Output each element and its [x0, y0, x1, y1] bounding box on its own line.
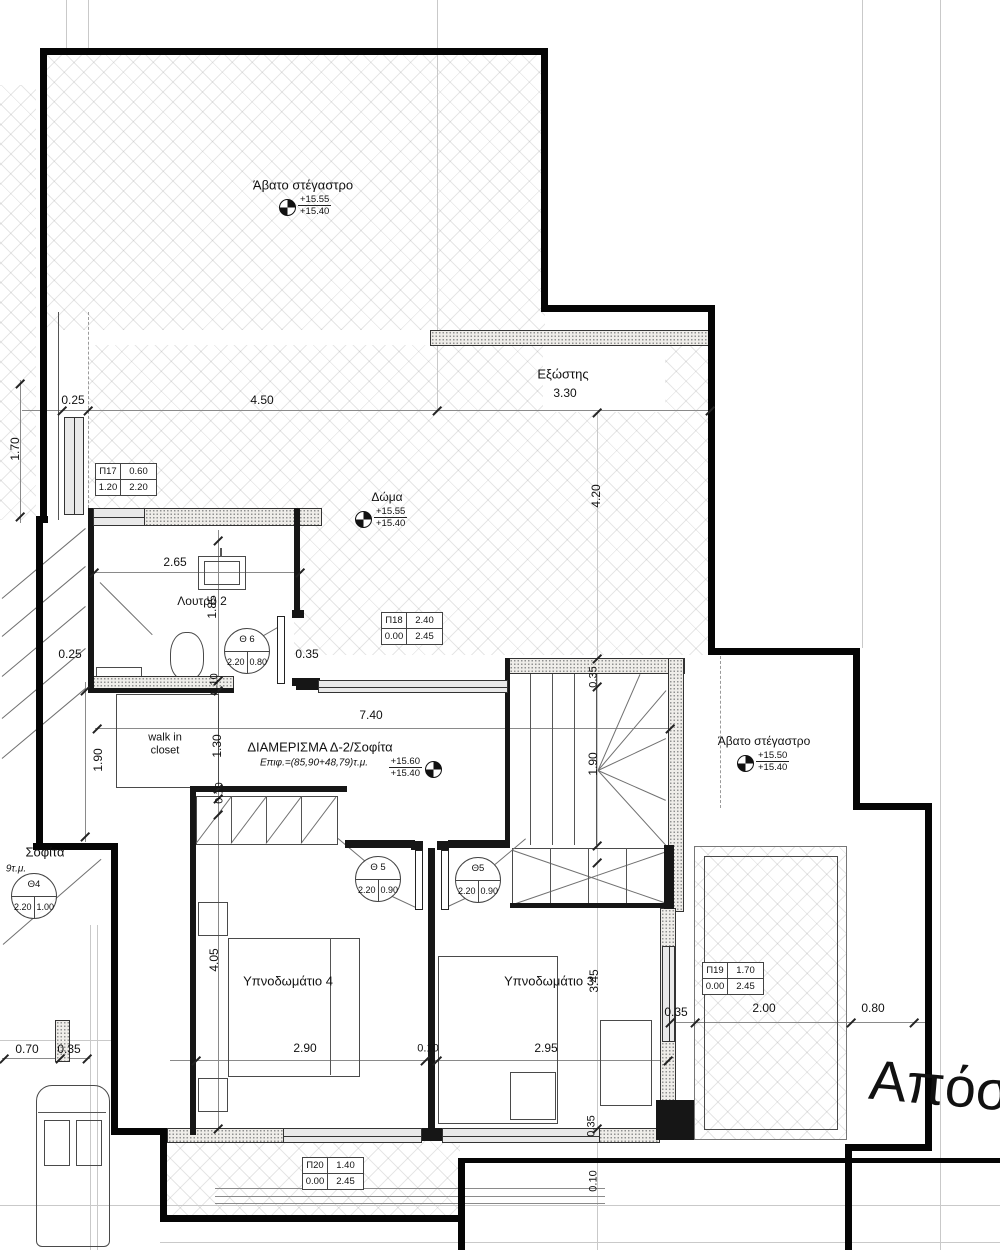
- wardrobe-divider: [301, 796, 302, 843]
- door-tag-th4-label: Θ4: [12, 874, 56, 897]
- door-tag-th5b-values: 2.200.90: [456, 881, 500, 903]
- dim-21: 0.25: [58, 648, 81, 662]
- dim-line: [2, 1058, 90, 1059]
- stair-tread: [574, 674, 575, 845]
- elevation-apartment-v2: +15.40: [389, 768, 422, 779]
- wall-boundary: [708, 648, 860, 655]
- wall-boundary-left: [40, 48, 47, 523]
- window-p20: [283, 1128, 422, 1143]
- wall-boundary: [160, 1128, 167, 1222]
- door-tag-th5a-values: 2.200.90: [356, 880, 400, 902]
- dim-16: 1.70: [9, 437, 23, 460]
- wall-boundary: [541, 305, 715, 312]
- window-tag-p17-v1: 0.60: [121, 464, 156, 479]
- wall-parapet-balcony: [430, 330, 714, 346]
- door-tag-th4-v2: 1.00: [35, 897, 57, 919]
- sink-faucet: [220, 548, 222, 557]
- elevation-doma-v2: +15.40: [374, 518, 407, 529]
- dim-line: [85, 682, 86, 842]
- stair-winder: [598, 770, 666, 801]
- wardrobe-divider: [231, 796, 232, 843]
- elevation-marker-icon: [425, 761, 442, 778]
- dim-37: 0.70: [15, 1043, 38, 1057]
- pillow-bedroom3: [510, 1072, 556, 1120]
- wall-corner: [296, 678, 320, 690]
- door-tag-th5a: Θ 52.200.90: [355, 856, 401, 902]
- neighbour-stair-line: [2, 606, 86, 677]
- wall-line-left-strip: [58, 312, 59, 520]
- dim-line: [22, 410, 712, 411]
- elevation-doma-v1: +15.55: [374, 506, 407, 518]
- window-tag-p19: Π191.700.002.45: [702, 962, 764, 995]
- closet-divider: [588, 848, 589, 906]
- window-tag-p18-id: Π18: [382, 613, 406, 628]
- window-tag-p18: Π182.400.002.45: [381, 612, 443, 645]
- door-tag-th5a-v2: 0.90: [379, 880, 401, 902]
- window-tag-p17-v2: 1.20: [96, 480, 120, 495]
- grid-line: [437, 0, 438, 412]
- grid-line: [88, 0, 89, 48]
- nightstand: [198, 1078, 228, 1112]
- elevation-marker-icon: [355, 511, 372, 528]
- dim-27: 0.35: [588, 666, 601, 687]
- wall-boundary-left: [36, 516, 43, 850]
- balcony-slab-line: [215, 1203, 605, 1204]
- window-p18: [318, 680, 508, 693]
- door-tag-th4-values: 2.201.00: [12, 897, 56, 919]
- door-tag-th4-v1: 2.20: [12, 897, 35, 919]
- door-leaf-th5b: [441, 850, 449, 910]
- label-bedroom3-8: Υπνοδωμάτιο 3: [504, 975, 594, 990]
- neighbour-stair-line: [2, 528, 86, 599]
- window-tag-p20-v2: 0.00: [303, 1174, 327, 1189]
- dim-33: 2.95: [534, 1042, 557, 1056]
- bed4-pillow-line: [330, 938, 331, 1075]
- dim-31: 2.90: [293, 1042, 316, 1056]
- wall-boundary: [708, 305, 715, 655]
- dim-36: 0.80: [861, 1002, 884, 1016]
- window-tag-p17-v3: 2.20: [121, 480, 156, 495]
- window-tag-p19-id: Π19: [703, 963, 727, 978]
- wall-bottom-right: [598, 1128, 660, 1143]
- door-tag-th6-values: 2.200.80: [225, 652, 269, 674]
- car-symbol: [36, 1085, 110, 1247]
- label-apostasi-12: Απόσ: [867, 1048, 1000, 1124]
- dim-line: [92, 572, 302, 573]
- door-tag-th5b-v1: 2.20: [456, 881, 479, 903]
- dim-28: 1.90: [587, 752, 601, 775]
- stair-winder: [598, 674, 641, 771]
- wall-boundary: [36, 516, 48, 523]
- elevation-apartment-values: +15.60+15.40: [389, 756, 422, 780]
- dim-30: 3.45: [588, 969, 602, 992]
- dim-26: 7.40: [359, 709, 382, 723]
- door-tag-th6: Θ 62.200.80: [224, 628, 270, 674]
- window-tag-p17: Π170.601.202.20: [95, 463, 157, 496]
- dim-20: 0.35: [295, 648, 318, 662]
- window-tag-p19-v2: 0.00: [703, 979, 727, 994]
- desk-bedroom3: [600, 1020, 652, 1106]
- closet-divider: [550, 848, 551, 906]
- car-seat: [76, 1120, 102, 1166]
- elevation-doma-values: +15.55+15.40: [374, 506, 407, 530]
- door-jamb: [437, 841, 449, 850]
- window-tag-p18-v2: 0.00: [382, 629, 406, 644]
- dim-13: 0.25: [61, 394, 84, 408]
- neighbour-stair-line: [2, 566, 86, 637]
- elevation-roof-top-v2: +15.40: [298, 206, 331, 217]
- stair-winder: [598, 738, 666, 771]
- dashed-projection-line: [720, 656, 721, 808]
- label-avato-right-9: Άβατο στέγαστρο: [718, 735, 811, 749]
- wall-boundary: [853, 648, 860, 810]
- window-tag-p17-id: Π17: [96, 464, 120, 479]
- stair-tread: [552, 674, 553, 845]
- door-leaf-th5a: [415, 850, 423, 910]
- balcony-slab-line: [215, 1188, 605, 1189]
- window-tag-p18-v1: 2.40: [407, 613, 442, 628]
- dim-17: 4.20: [590, 484, 604, 507]
- dim-24: 1.30: [211, 734, 225, 757]
- window-tag-p19-v1: 1.70: [728, 963, 763, 978]
- wall-bedroom4-left: [190, 786, 196, 1135]
- car-seat: [44, 1120, 70, 1166]
- door-tag-th5b-label: Θ5: [456, 858, 500, 881]
- window-tag-p20: Π201.400.002.45: [302, 1157, 364, 1190]
- door-tag-th4: Θ42.201.00: [11, 873, 57, 919]
- balcony-slab-line: [215, 1196, 605, 1197]
- stair-winder: [598, 690, 667, 771]
- elevation-marker-icon: [279, 199, 296, 216]
- dim-39: 0.35: [586, 1115, 599, 1136]
- car-windshield: [38, 1112, 106, 1113]
- dim-40: 0.10: [588, 1170, 601, 1191]
- dim-23: 1.90: [92, 748, 106, 771]
- door-tag-th5a-v1: 2.20: [356, 880, 379, 902]
- elevation-roof-right-v1: +15.50: [756, 750, 789, 762]
- window-left-strip: [64, 417, 84, 515]
- wall-boundary: [845, 1144, 932, 1151]
- dim-14: 4.50: [250, 394, 273, 408]
- label-doma-2: Δώμα: [371, 491, 402, 505]
- dim-25: 0.10: [214, 782, 227, 803]
- wall-stair-terrace: [664, 845, 674, 909]
- stair-winder: [598, 770, 667, 845]
- dim-32: 0.10: [417, 1043, 438, 1056]
- nightstand: [198, 902, 228, 936]
- wall-between-bedrooms: [428, 848, 435, 1135]
- label-sofita-fragment-10: Σοφίτα: [25, 846, 64, 861]
- window-tag-p18-v3: 2.45: [407, 629, 442, 644]
- label-apartment-title-5: ΔΙΑΜΕΡΙΣΜΑ Δ-2/Σοφίτα: [247, 741, 392, 756]
- wall-boundary-top: [40, 48, 548, 55]
- wall-bottom-left: [167, 1128, 285, 1143]
- label-walkin-closet-4: walk in closet: [148, 731, 182, 756]
- wall-window-pier: [420, 1128, 442, 1141]
- wall-corridor-a: [345, 840, 415, 848]
- elevation-roof-top-v1: +15.55: [298, 194, 331, 206]
- grid-line: [66, 0, 67, 48]
- window-tag-p20-v1: 1.40: [328, 1158, 363, 1173]
- dim-15: 3.30: [553, 387, 576, 401]
- elevation-roof-top-values: +15.55+15.40: [298, 194, 331, 218]
- wall-bath-right: [294, 508, 300, 614]
- label-exostis-1: Εξώστης: [537, 368, 588, 383]
- door-tag-th6-v1: 2.20: [225, 652, 248, 674]
- elevation-roof-right-v2: +15.40: [756, 762, 789, 773]
- toilet: [170, 632, 204, 680]
- elevation-marker-icon: [737, 755, 754, 772]
- elevation-apartment-v1: +15.60: [389, 756, 422, 768]
- dim-29: 4.05: [208, 948, 222, 971]
- dim-19: 1.85: [206, 595, 220, 618]
- door-jamb: [411, 841, 423, 850]
- door-leaf-th6: [277, 616, 285, 684]
- label-area-fragment-11: 9τ.μ.: [6, 863, 26, 875]
- wall-boundary: [853, 803, 932, 810]
- label-avato-top-0: Άβατο στέγαστρο: [253, 179, 353, 194]
- window-tag-p20-id: Π20: [303, 1158, 327, 1173]
- wall-bath-left: [88, 508, 94, 688]
- label-bedroom4-7: Υπνοδωμάτιο 4: [243, 975, 333, 990]
- grid-line: [862, 0, 863, 648]
- door-tag-th5b: Θ52.200.90: [455, 857, 501, 903]
- wall-boundary: [111, 1128, 167, 1135]
- window-tag-p19-v3: 2.45: [728, 979, 763, 994]
- plot-boundary-line: [458, 1158, 1000, 1163]
- dim-22: 0.10: [209, 673, 222, 694]
- dim-34: 0.35: [664, 1006, 687, 1020]
- wardrobe-divider: [266, 796, 267, 843]
- dim-38: 0.35: [57, 1043, 80, 1057]
- wall-boundary: [111, 843, 118, 1135]
- door-tag-th6-v2: 0.80: [248, 652, 270, 674]
- door-tag-th5b-v2: 0.90: [479, 881, 501, 903]
- wall-boundary-bottom: [160, 1215, 465, 1222]
- wall-bedroom3-top: [510, 903, 668, 908]
- wall-boundary: [458, 1158, 465, 1250]
- wall-corner-bedroom3: [656, 1100, 694, 1140]
- window-tag-p20-v3: 2.45: [328, 1174, 363, 1189]
- stair-tread: [530, 674, 531, 845]
- label-apartment-area-6: Επιφ.=(85,90+48,79)τ.μ.: [260, 757, 368, 769]
- bed-bedroom4: [228, 938, 360, 1077]
- elevation-roof-right-values: +15.50+15.40: [756, 750, 789, 774]
- door-tag-th5a-label: Θ 5: [356, 857, 400, 880]
- window-bedroom3: [442, 1128, 600, 1143]
- door-jamb: [292, 610, 304, 618]
- window-p19: [662, 946, 675, 1042]
- floorplan-canvas: Άβατο στέγαστροΕξώστηςΔώμαΛουτρό 2walk i…: [0, 0, 1000, 1250]
- wall-corridor-b: [448, 840, 508, 848]
- window-p17: [93, 508, 145, 526]
- slab-line: [160, 1242, 1000, 1243]
- neighbour-stair-line: [2, 688, 86, 759]
- door-tag-th6-label: Θ 6: [225, 629, 269, 652]
- wall-boundary: [541, 48, 548, 312]
- sink-basin: [204, 561, 240, 585]
- dim-18: 2.65: [163, 556, 186, 570]
- closet-divider: [626, 848, 627, 906]
- dim-35: 2.00: [752, 1002, 775, 1016]
